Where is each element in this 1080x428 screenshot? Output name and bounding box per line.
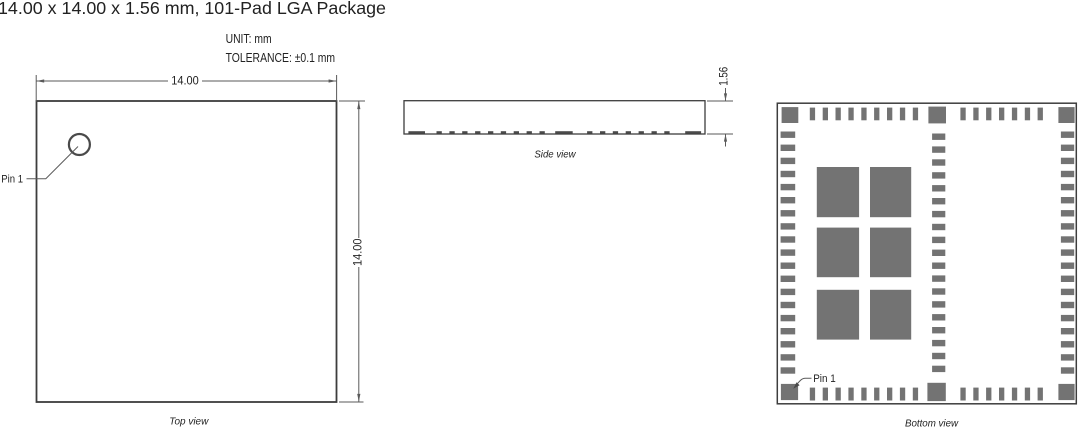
svg-text:TOLERANCE: ±0.1 mm: TOLERANCE: ±0.1 mm [226,50,336,65]
svg-text:Side view: Side view [534,149,577,160]
svg-text:14.00 x 14.00 x 1.56 mm, 101-P: 14.00 x 14.00 x 1.56 mm, 101-Pad LGA Pac… [0,0,386,18]
svg-text:Top view: Top view [169,417,209,428]
svg-text:1.56: 1.56 [718,67,731,86]
svg-text:14.00: 14.00 [171,74,199,87]
svg-text:Pin 1: Pin 1 [813,373,836,385]
svg-text:Pin 1: Pin 1 [1,174,23,186]
svg-text:UNIT: mm: UNIT: mm [226,31,272,46]
svg-text:Bottom view: Bottom view [905,419,960,428]
svg-text:14.00: 14.00 [352,238,365,266]
